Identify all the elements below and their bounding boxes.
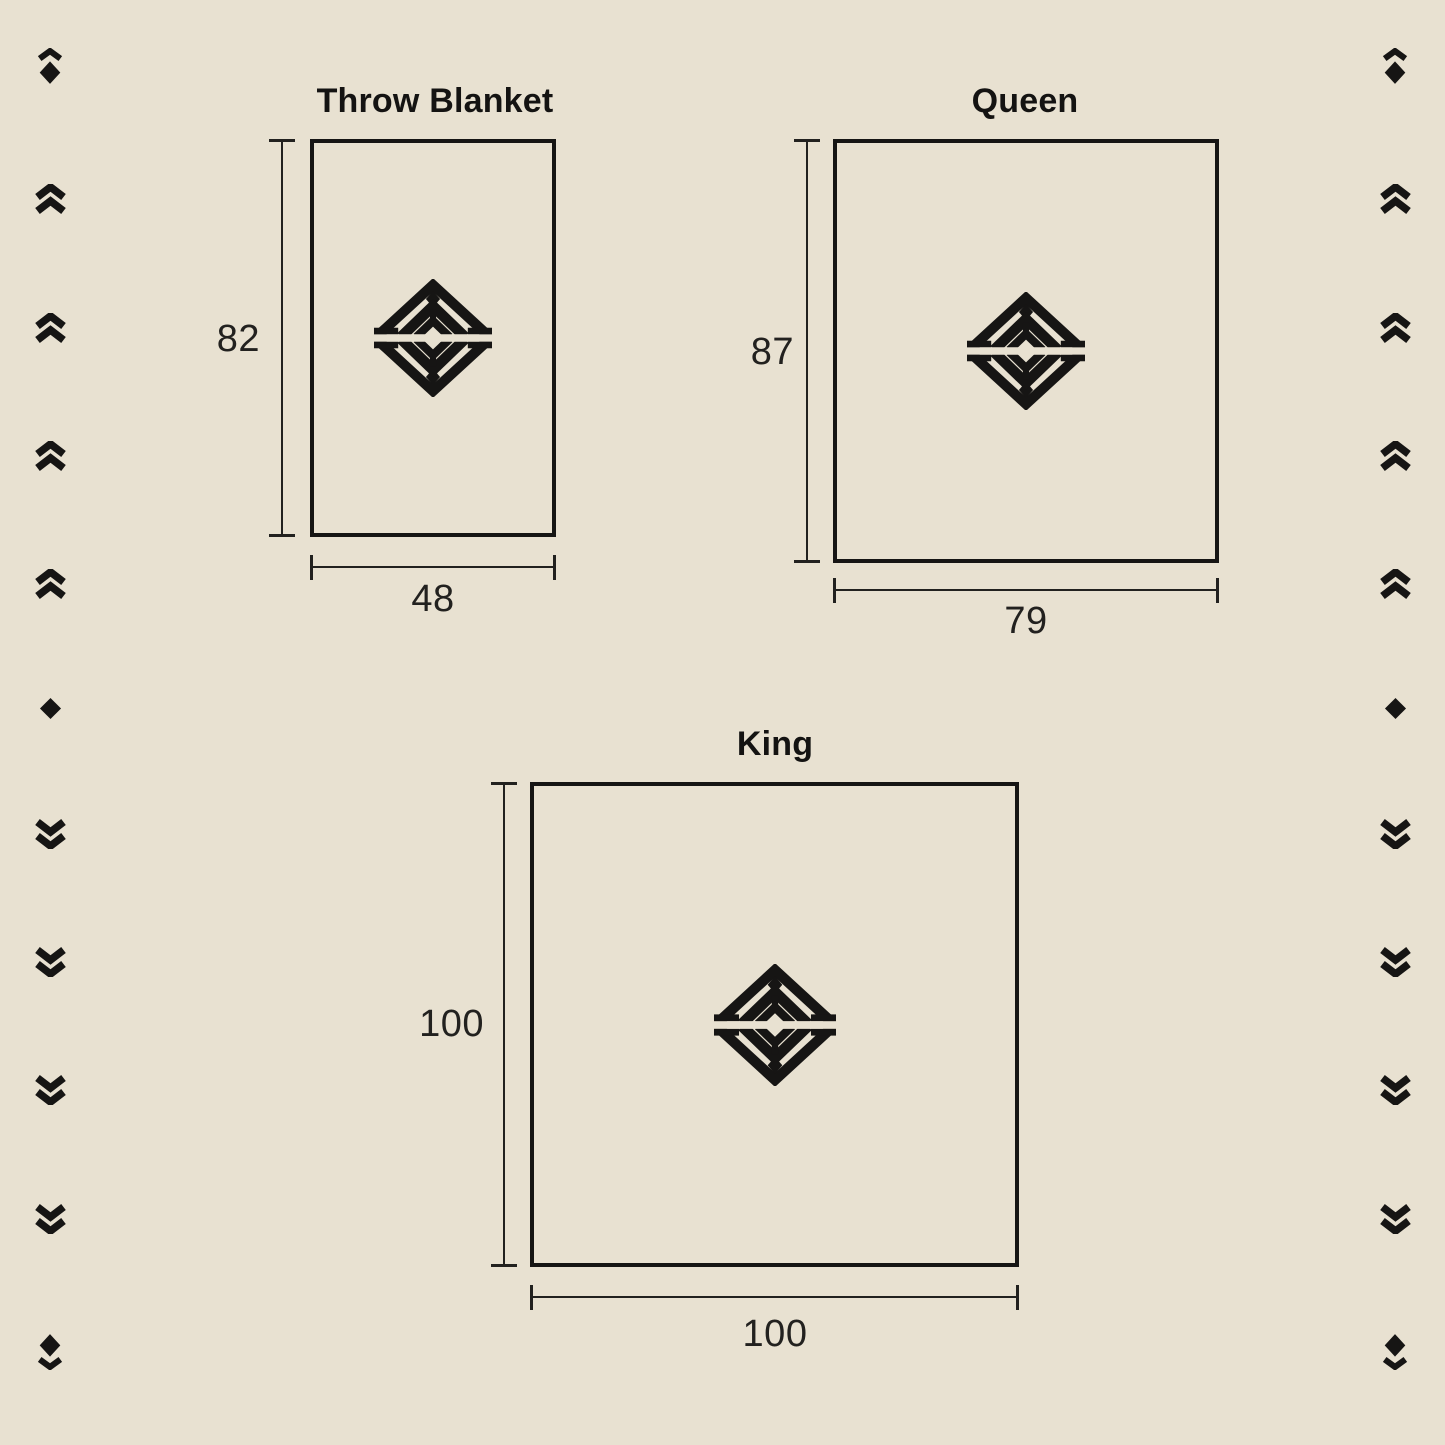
double-chevron-down-icon <box>1379 819 1412 849</box>
double-chevron-up-icon <box>34 184 67 214</box>
double-chevron-up-icon <box>34 441 67 471</box>
blanket-outline-king <box>530 782 1019 1267</box>
blanket-outline-throw <box>310 139 556 537</box>
blanket-outline-queen <box>833 139 1219 563</box>
size-title-king: King <box>610 725 940 764</box>
double-chevron-up-icon <box>1379 313 1412 343</box>
double-chevron-down-icon <box>34 947 67 977</box>
height-dimension-line-throw <box>281 140 283 536</box>
double-chevron-up-icon <box>1379 569 1412 599</box>
ornament-column-left <box>26 48 74 1370</box>
height-value-throw: 82 <box>178 314 260 364</box>
size-title-throw: Throw Blanket <box>270 82 600 121</box>
height-value-king: 100 <box>376 999 484 1049</box>
diamond-icon <box>39 697 62 720</box>
double-chevron-down-icon <box>34 1075 67 1105</box>
diamond-chevron-icon <box>35 1332 65 1370</box>
double-chevron-down-icon <box>1379 947 1412 977</box>
width-dimension-line-throw <box>311 566 555 568</box>
chevron-diamond-icon <box>35 48 65 86</box>
size-title-queen: Queen <box>860 82 1190 121</box>
double-chevron-up-icon <box>34 313 67 343</box>
width-dimension-line-queen <box>834 589 1218 591</box>
double-chevron-down-icon <box>34 1204 67 1234</box>
double-chevron-down-icon <box>1379 1204 1412 1234</box>
diamond-icon <box>1384 697 1407 720</box>
height-dimension-line-king <box>503 783 505 1266</box>
diamond-chevron-icon <box>1380 1332 1410 1370</box>
brand-diamond-logo-icon <box>967 292 1085 410</box>
double-chevron-down-icon <box>34 819 67 849</box>
double-chevron-up-icon <box>1379 441 1412 471</box>
width-value-queen: 79 <box>930 597 1122 645</box>
ornament-column-right <box>1371 48 1419 1370</box>
brand-diamond-logo-icon <box>374 279 492 397</box>
brand-diamond-logo-icon <box>714 964 836 1086</box>
width-value-king: 100 <box>680 1310 870 1358</box>
double-chevron-up-icon <box>34 569 67 599</box>
chevron-diamond-icon <box>1380 48 1410 86</box>
double-chevron-down-icon <box>1379 1075 1412 1105</box>
width-value-throw: 48 <box>335 575 531 623</box>
double-chevron-up-icon <box>1379 184 1412 214</box>
height-value-queen: 87 <box>712 327 794 377</box>
size-guide-page: Throw Blanket 82 48 Queen 87 79 King 100… <box>0 0 1445 1445</box>
height-dimension-line-queen <box>806 140 808 562</box>
width-dimension-line-king <box>531 1296 1018 1298</box>
